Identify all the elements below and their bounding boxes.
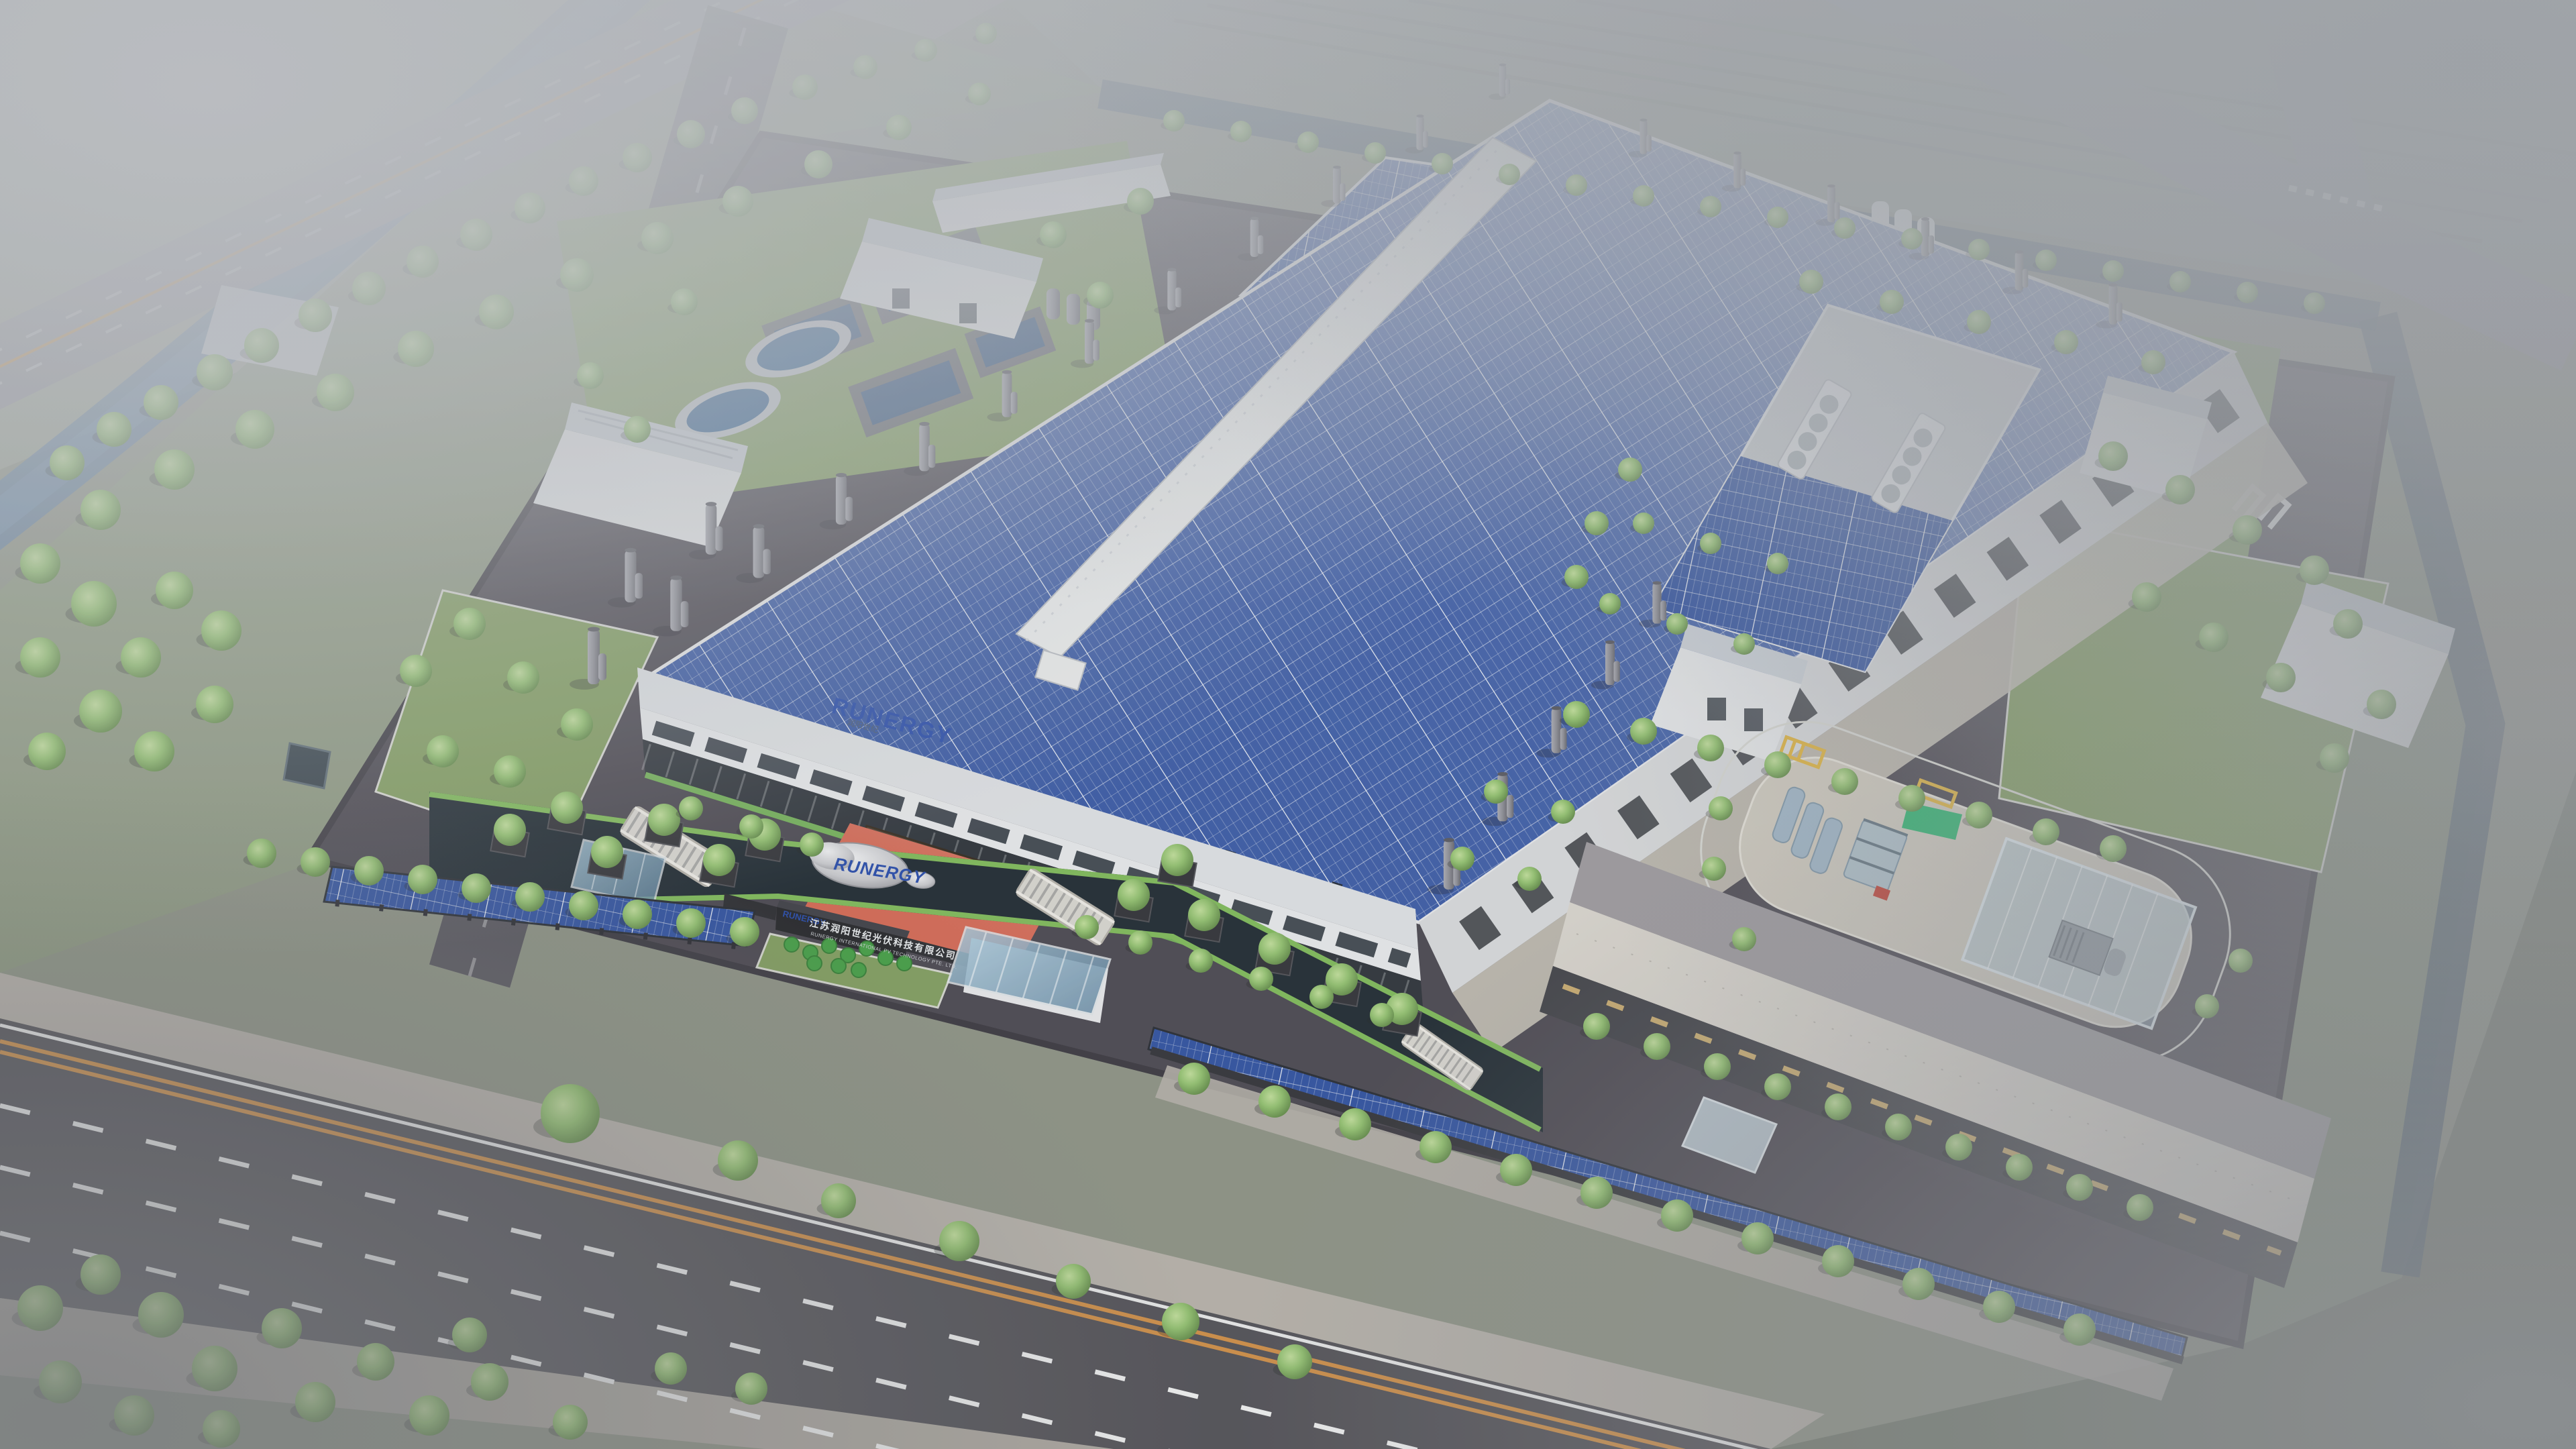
scene-canvas: RUNERGY 润阳世纪 RUNERGY RUNERGY 江苏润阳世纪光伏科技有… [0,0,2576,1449]
fog-overlay [0,0,2576,1449]
aerial-render: RUNERGY 润阳世纪 RUNERGY RUNERGY 江苏润阳世纪光伏科技有… [0,0,2576,1449]
